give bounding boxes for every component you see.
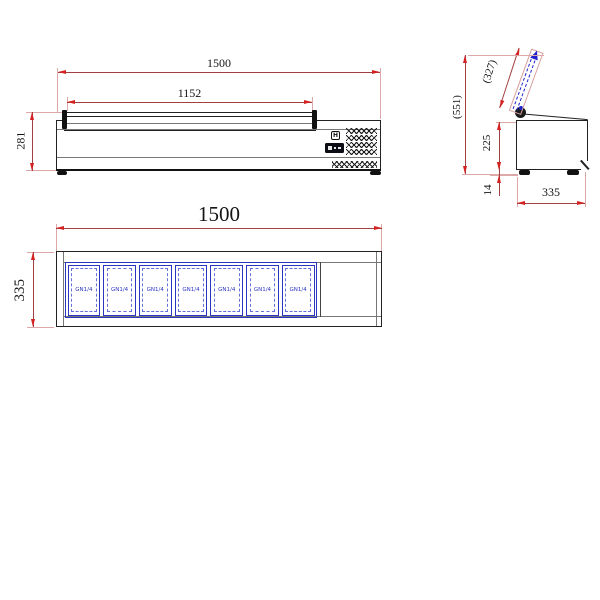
dim-label: 335 [12, 272, 29, 308]
lid-glass-dash [513, 59, 532, 109]
extension-line [27, 327, 54, 328]
display-segment [328, 146, 332, 150]
display-segment [338, 147, 341, 149]
extension-line [468, 55, 544, 56]
pan-label: GN1/4 [173, 263, 209, 317]
dim-label: 335 [535, 186, 567, 199]
controller-logo: H [331, 131, 340, 140]
compressor-divider [320, 262, 321, 317]
vent-grille-strip [332, 161, 377, 168]
arrow-right [374, 226, 382, 230]
pan-label: GN1/4 [280, 263, 316, 317]
plan-inner-line-left [63, 252, 64, 326]
arrow-left [56, 226, 64, 230]
lid-end-bracket-right [312, 110, 317, 129]
dim-label: 1152 [67, 87, 312, 100]
arrow-up [463, 55, 467, 63]
foot [567, 170, 579, 175]
arrow-left [67, 100, 75, 104]
pan-label: GN1/4 [137, 263, 173, 317]
pan-label: GN1/4 [209, 263, 245, 317]
extension-line [57, 68, 58, 113]
vent-grille-row [346, 135, 377, 141]
arrow-up [30, 112, 34, 120]
dim-label: 1500 [58, 57, 380, 70]
dim-label: 14 [482, 176, 494, 204]
arrow-right [304, 100, 312, 104]
gn-pan: GN1/4 [137, 263, 173, 317]
pan-label: GN1/4 [245, 263, 281, 317]
side-body [516, 120, 588, 170]
dim-label: (551) [451, 88, 463, 126]
foot [57, 171, 67, 175]
arrow-right [577, 201, 585, 205]
display-segment [334, 147, 336, 149]
arrow-left [58, 70, 66, 74]
pan-label: GN1/4 [66, 263, 102, 317]
gn-pan: GN1/4 [102, 263, 138, 317]
arrow-up [497, 122, 501, 130]
controller-display [325, 143, 344, 153]
arrow-down [30, 163, 34, 171]
dim-label: 281 [14, 126, 27, 156]
arrow-up [497, 175, 501, 183]
arrow-up [31, 252, 35, 260]
foot [370, 171, 381, 175]
lid-glass-dash [516, 60, 535, 110]
gn-pan: GN1/4 [209, 263, 245, 317]
dim-label: (327) [474, 40, 505, 104]
vent-grille-row [346, 149, 377, 155]
plan-inner-line-right [376, 252, 377, 326]
front-trim-line [57, 157, 380, 158]
pan-label: GN1/4 [102, 263, 138, 317]
arrow-down [31, 319, 35, 327]
vent-grille-row [346, 128, 377, 134]
gn-pan-row: GN1/4 GN1/4 GN1/4 GN1/4 GN1/4 [65, 262, 317, 318]
front-base-edge [56, 169, 381, 172]
lid-end-bracket-left [62, 110, 67, 129]
technical-drawing-canvas: 1500 1152 281 H [0, 0, 600, 600]
gn-pan: GN1/4 [245, 263, 281, 317]
extension-line [312, 97, 313, 111]
extension-line [585, 172, 586, 207]
arrow-down [497, 162, 501, 170]
arrow-down [463, 166, 467, 174]
gn-pan: GN1/4 [66, 263, 102, 317]
foot [519, 170, 530, 175]
vent-grille-row [346, 142, 377, 148]
extension-line [490, 175, 518, 176]
gn-pan: GN1/4 [280, 263, 316, 317]
arrow-right [372, 70, 380, 74]
dim-label: 1500 [56, 203, 382, 226]
dim-label: 225 [481, 128, 493, 158]
extension-line [380, 68, 381, 119]
arrow-left [517, 201, 525, 205]
gn-pan: GN1/4 [173, 263, 209, 317]
arrow-left [498, 100, 504, 109]
front-rim-line [57, 129, 380, 130]
